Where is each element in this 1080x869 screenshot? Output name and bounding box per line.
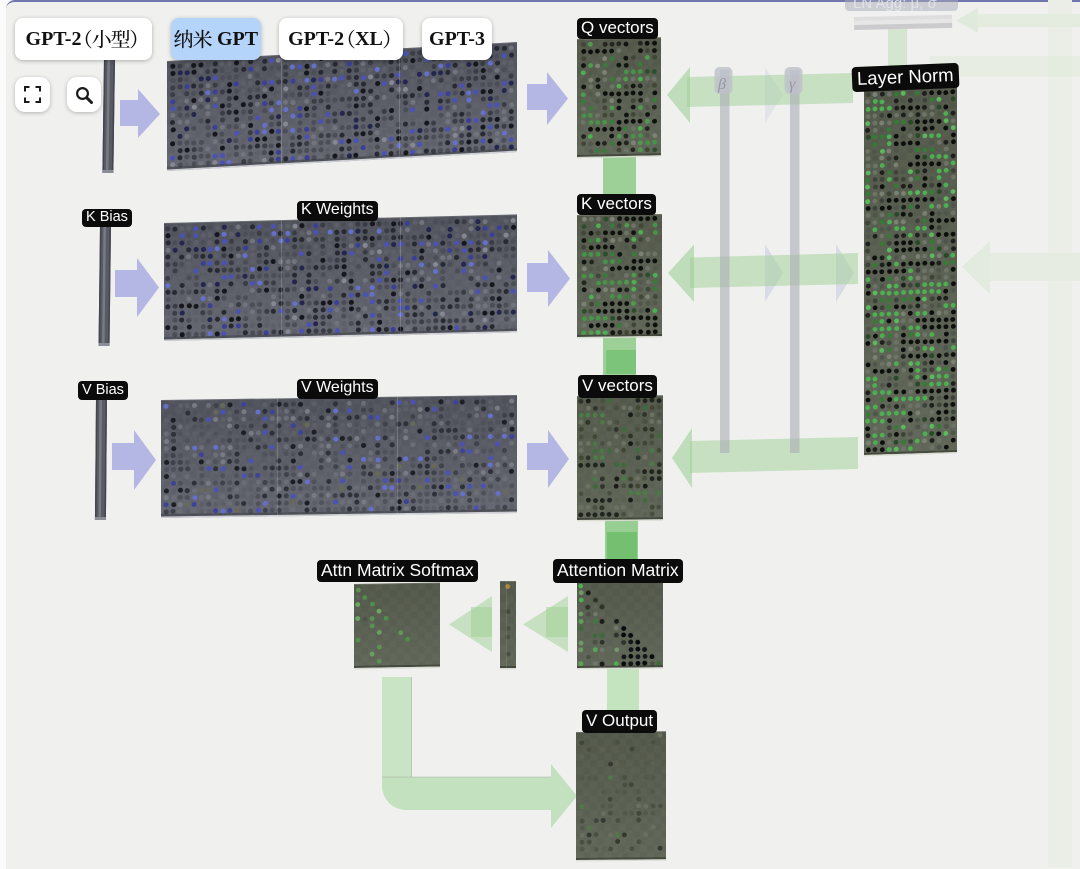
svg-text:γ: γ [789,76,796,93]
svg-text:β: β [717,76,726,93]
svg-text:LN Agg: μ, σ: LN Agg: μ, σ [853,0,938,12]
